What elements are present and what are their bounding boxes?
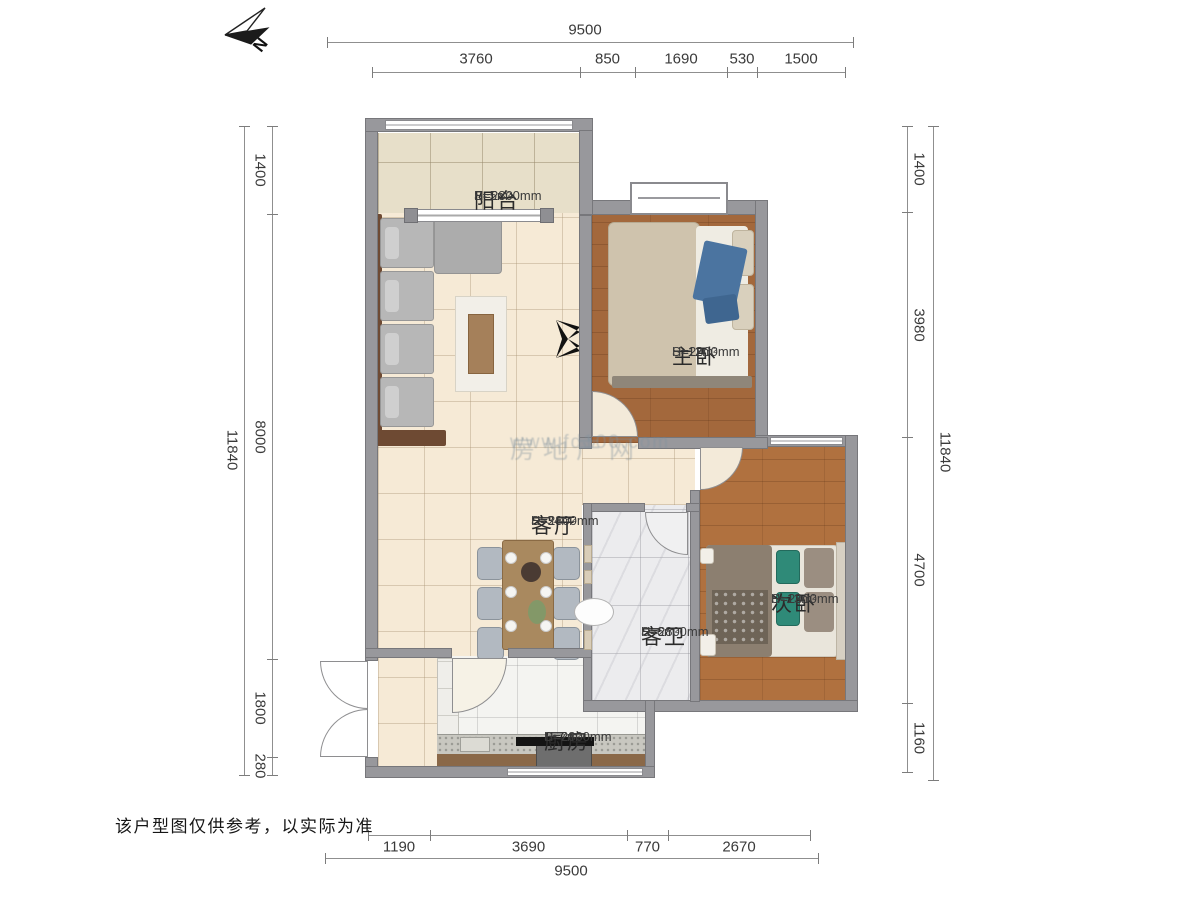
dim-tick — [757, 67, 758, 78]
dim-line — [244, 126, 245, 775]
dining-chair — [477, 587, 504, 620]
dim-lab: 1690 — [664, 52, 697, 67]
dim-tick — [902, 437, 913, 438]
wall-bath-bottom — [583, 700, 647, 712]
wall-master-right — [755, 200, 768, 437]
wall-bath-top-b — [686, 503, 700, 512]
wall-second-bottom — [647, 700, 858, 712]
dim-lab: 280 — [253, 753, 268, 778]
disclaimer-text: 该户型图仅供参考，以实际为准 — [115, 812, 374, 837]
dim-tick — [239, 775, 250, 776]
room-area: S≈5m² — [474, 188, 512, 203]
sofa-cushions — [380, 218, 434, 430]
dim-tick — [430, 830, 431, 841]
teal-pillow — [776, 550, 800, 584]
plate — [540, 552, 552, 564]
bay-window — [630, 182, 728, 215]
dim-lab: 4700 — [912, 553, 927, 586]
slider-post — [540, 208, 554, 223]
dim-lab: 1400 — [253, 153, 268, 186]
dim-lab: 9500 — [568, 23, 601, 38]
dim-tick — [239, 126, 250, 127]
dim-tick — [845, 67, 846, 78]
bed-end-bench — [612, 376, 752, 388]
kitchen-sink — [460, 737, 490, 752]
dim-tick — [810, 830, 811, 841]
dim-line — [272, 126, 273, 775]
dim-tick — [267, 659, 278, 660]
plate — [505, 552, 517, 564]
kitchen-window — [507, 768, 643, 776]
dim-tick — [267, 775, 278, 776]
coffee-table — [468, 314, 494, 374]
dim-line — [325, 858, 818, 859]
dim-line — [933, 126, 934, 780]
dim-lab: 11840 — [225, 430, 240, 471]
sofa-arm — [366, 430, 446, 446]
dim-lab: 9500 — [554, 864, 587, 879]
plate — [505, 620, 517, 632]
dim-lab: 1400 — [912, 152, 927, 185]
wall-second-left — [690, 490, 700, 702]
wall-bath-top-a — [583, 503, 645, 512]
dim-tick — [928, 126, 939, 127]
dim-lab: 2670 — [722, 840, 755, 855]
dim-lab: 3760 — [459, 52, 492, 67]
dim-line — [368, 835, 810, 836]
plate — [505, 586, 517, 598]
dining-chair — [477, 627, 504, 660]
dining-chair — [477, 547, 504, 580]
dim-tick — [853, 37, 854, 48]
dim-tick — [267, 214, 278, 215]
second-bedroom-window — [770, 437, 843, 445]
wall-second-right — [845, 435, 858, 712]
dim-line — [372, 72, 845, 73]
floor-plan-canvas: N — [0, 0, 1200, 900]
dim-tick — [635, 67, 636, 78]
dim-tick — [902, 772, 913, 773]
dim-tick — [902, 126, 913, 127]
nightstand — [700, 548, 714, 564]
table-plant — [528, 600, 546, 624]
dim-tick — [818, 853, 819, 864]
dim-lab: 1800 — [253, 691, 268, 724]
dim-lab: 850 — [595, 52, 620, 67]
dim-tick — [327, 37, 328, 48]
dim-lab: 1160 — [912, 721, 927, 753]
balcony-window — [385, 120, 573, 130]
dim-tick — [267, 126, 278, 127]
wall-balcony-right — [579, 130, 593, 215]
gray-pillow — [804, 548, 834, 588]
dim-line — [907, 126, 908, 772]
wall-kitchen-top-b — [508, 648, 592, 658]
dim-lab: 1500 — [784, 52, 817, 67]
slider-post — [404, 208, 418, 223]
second-bed-throw — [712, 590, 768, 644]
dim-lab: 3980 — [912, 308, 927, 341]
dim-line — [327, 42, 853, 43]
dim-tick — [727, 67, 728, 78]
dim-tick — [928, 780, 939, 781]
dim-lab: 3690 — [512, 840, 545, 855]
dim-tick — [325, 853, 326, 864]
bath-shelf-item — [584, 570, 592, 584]
dim-lab: 11840 — [938, 432, 953, 473]
dim-tick — [372, 67, 373, 78]
wash-basin — [574, 598, 614, 626]
dim-lab: 8000 — [253, 420, 268, 453]
dim-tick — [902, 703, 913, 704]
dim-lab: 770 — [635, 840, 660, 855]
bath-shelf-item — [584, 545, 592, 563]
blue-throw — [702, 294, 739, 324]
dim-tick — [580, 67, 581, 78]
watermark-url: www.fd100.com — [510, 432, 670, 454]
bath-shelf-item — [584, 630, 592, 650]
dim-tick — [627, 830, 628, 841]
wall-left-upper — [365, 118, 378, 661]
dim-tick — [902, 212, 913, 213]
dim-tick — [668, 830, 669, 841]
wall-kitchen-top-a — [365, 648, 452, 658]
dim-lab: 530 — [729, 52, 754, 67]
plate — [540, 586, 552, 598]
dim-lab: 1190 — [383, 840, 415, 855]
sofa-chaise — [434, 218, 502, 274]
dim-tick — [267, 757, 278, 758]
tv-icon — [554, 320, 582, 358]
wall-living-master — [579, 215, 592, 443]
fruit-bowl — [521, 562, 541, 582]
dining-chair — [553, 547, 580, 580]
